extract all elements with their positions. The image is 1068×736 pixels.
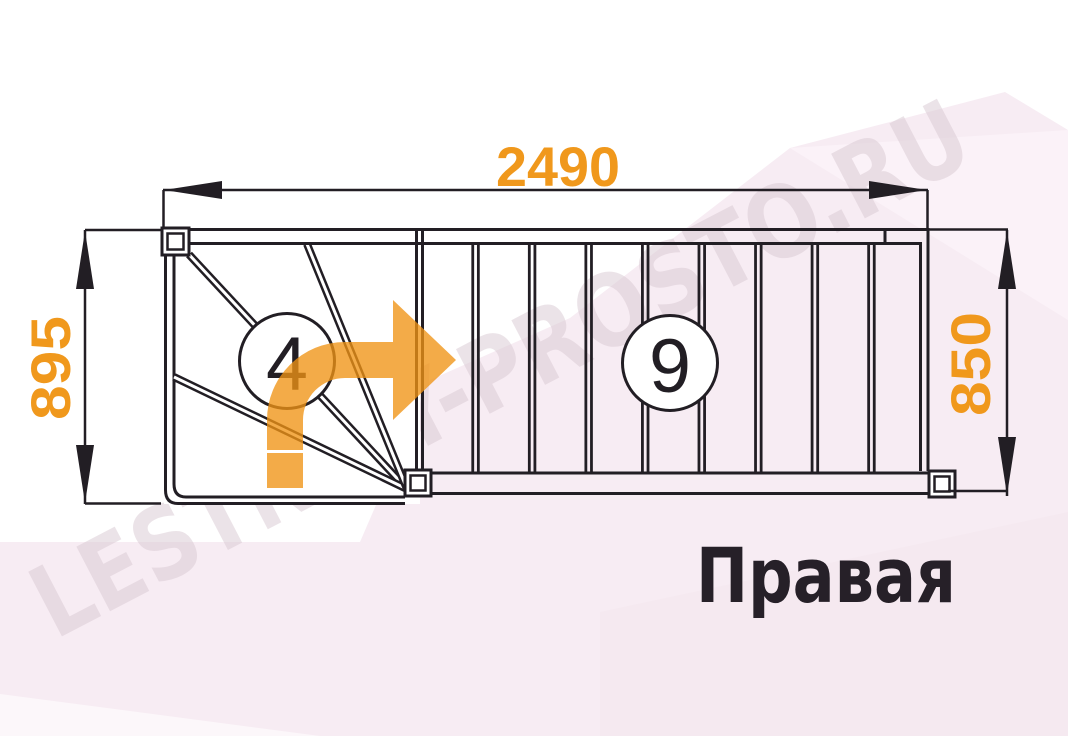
stair-plan-diagram: LESTNICY-PROSTO.RU 4 9 2490 bbox=[0, 0, 1068, 736]
direction-arrow-stem bbox=[267, 453, 303, 488]
dimension-total-length-label: 2490 bbox=[496, 135, 620, 198]
stair-plan-page: LESTNICY-PROSTO.RU 4 9 2490 bbox=[0, 0, 1068, 736]
newel-post-bottom-right-inner bbox=[935, 477, 950, 492]
newel-post-top-left-inner bbox=[168, 234, 184, 250]
newel-post-bottom-center-inner bbox=[411, 476, 426, 491]
plan-title: Правая bbox=[696, 531, 956, 620]
dimension-flight-width-label: 850 bbox=[939, 312, 1002, 416]
straight-step-count: 9 bbox=[649, 324, 691, 409]
dimension-entry-width-label: 895 bbox=[19, 316, 82, 420]
